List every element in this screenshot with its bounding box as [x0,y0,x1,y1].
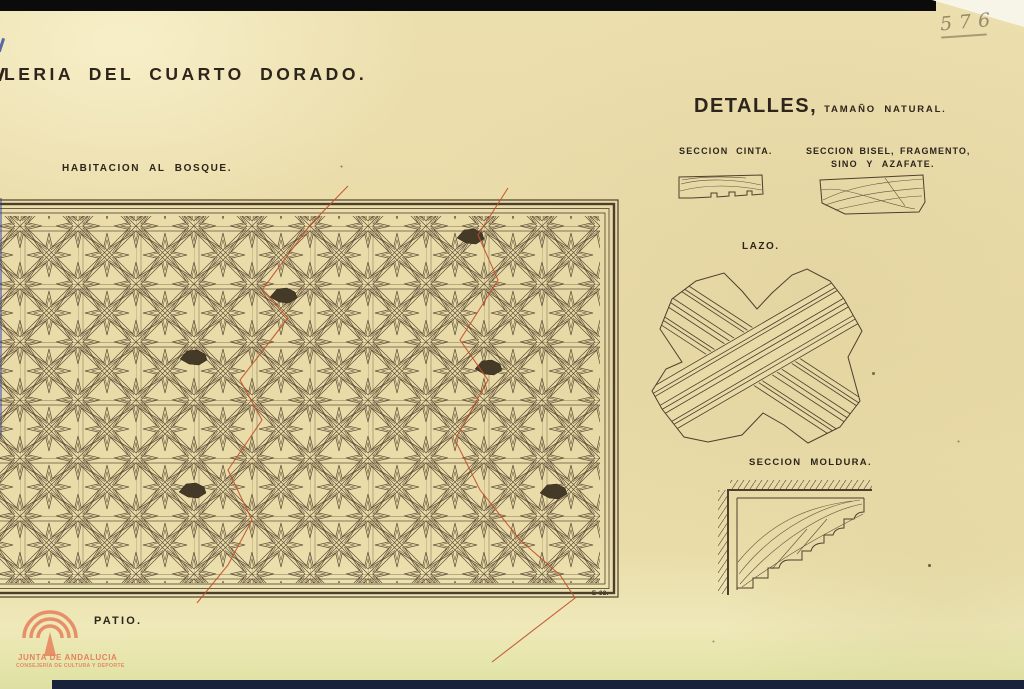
moldura-section-drawing [712,474,872,596]
blue-ink-mark [0,38,5,52]
sheet-title: LERIA DEL CUARTO DORADO. [4,64,367,85]
cinta-section-drawing [676,172,766,204]
label-seccion-bisel-1: SECCION BISEL, FRAGMENTO, [806,146,970,156]
stamp-line-2: CONSEJERÍA DE CULTURA Y DEPORTE [16,663,125,669]
scanned-drawing-sheet: LERIA DEL CUARTO DORADO. 576 HABITACION … [0,0,1024,689]
stamp-line-1: JUNTA DE ANDALUCIA [18,653,117,662]
label-lazo: LAZO. [742,241,780,252]
details-heading: DETALLES, TAMAÑO NATURAL. [694,95,947,118]
paper-specks [0,0,1,1]
label-seccion-cinta: SECCION CINTA. [679,146,773,156]
details-heading-suffix: TAMAÑO NATURAL. [824,104,946,115]
scanner-bottom-bar [52,680,1024,689]
scanner-top-bar [0,0,936,11]
label-seccion-moldura: SECCION MOLDURA. [749,457,872,468]
pattern-panel-drawing [0,168,622,668]
pencil-sheet-number: 576 [939,9,998,36]
bisel-section-drawing [815,172,927,216]
label-seccion-bisel-2: SINO Y AZAFATE. [831,159,935,169]
lazo-crossing-drawing [644,267,868,445]
details-heading-main: DETALLES, [694,95,817,118]
